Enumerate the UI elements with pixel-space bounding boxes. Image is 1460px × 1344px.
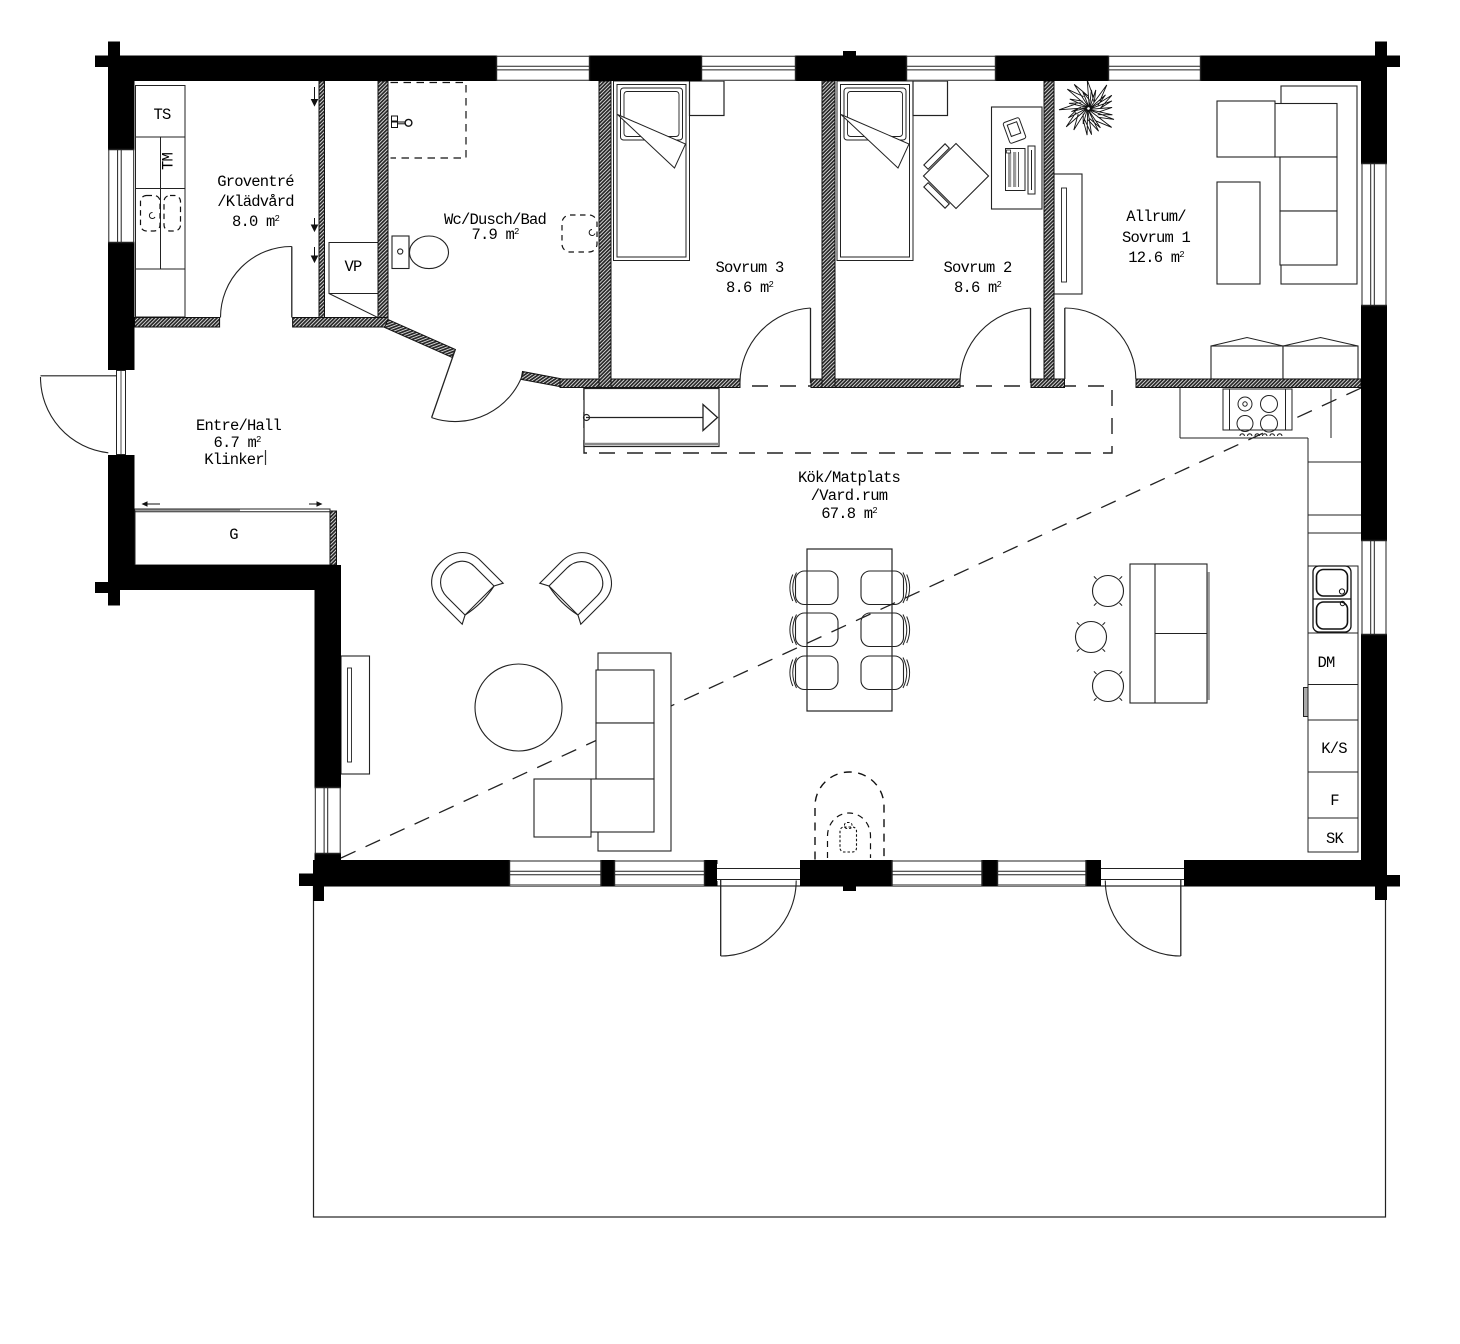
svg-text:8.0 m2: 8.0 m2 — [232, 213, 280, 231]
svg-text:G: G — [229, 526, 238, 544]
svg-text:DM: DM — [1317, 654, 1335, 672]
svg-text:VP: VP — [344, 258, 362, 276]
svg-text:8.6 m2: 8.6 m2 — [726, 279, 774, 297]
svg-text:Kök/Matplats: Kök/Matplats — [798, 469, 901, 487]
svg-text:8.6 m2: 8.6 m2 — [954, 279, 1002, 297]
svg-text:/Vard.rum: /Vard.rum — [811, 487, 888, 505]
svg-text:Sovrum 3: Sovrum 3 — [715, 259, 784, 277]
svg-text:K/S: K/S — [1321, 740, 1347, 758]
svg-text:SK: SK — [1326, 830, 1345, 848]
svg-text:Allrum/: Allrum/ — [1126, 208, 1186, 226]
svg-text:67.8 m2: 67.8 m2 — [821, 505, 877, 523]
svg-text:Sovrum 2: Sovrum 2 — [943, 259, 1012, 277]
svg-text:Groventré: Groventré — [217, 173, 294, 191]
svg-text:F: F — [1330, 792, 1339, 810]
svg-text:7.9 m2: 7.9 m2 — [471, 226, 519, 244]
svg-text:12.6 m2: 12.6 m2 — [1128, 249, 1184, 267]
svg-text:Sovrum 1: Sovrum 1 — [1122, 229, 1191, 247]
svg-text:Klinker: Klinker — [204, 451, 264, 469]
svg-text:TM: TM — [160, 153, 178, 171]
svg-text:6.7 m2: 6.7 m2 — [213, 434, 261, 452]
svg-text:/Klädvård: /Klädvård — [217, 193, 294, 211]
svg-text:TS: TS — [153, 106, 171, 124]
svg-text:Entre/Hall: Entre/Hall — [196, 417, 282, 435]
